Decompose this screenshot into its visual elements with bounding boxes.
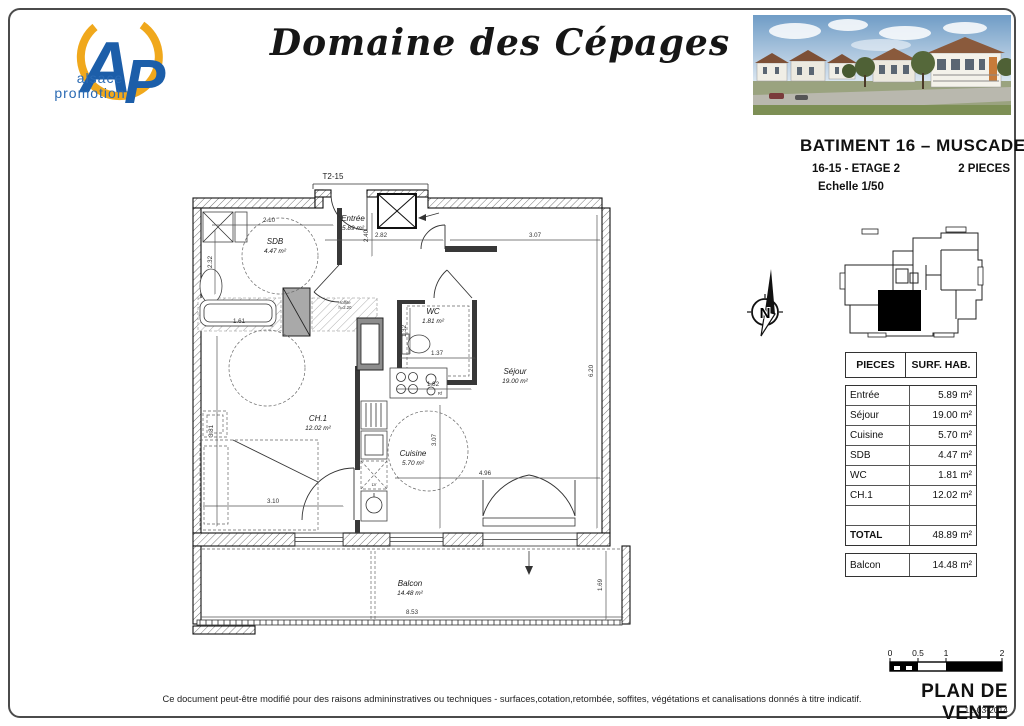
dim-entree-height: 2.40 [363,229,370,242]
room-wc-name: WC [426,307,440,316]
bedroom-furniture [200,330,318,530]
unit-type: 2 PIECES [958,163,1010,175]
room-sdb-name: SDB [267,237,284,246]
table-row-wc: WC 1.81 m² [846,466,976,486]
soffite-note-right-2: h=2.20 [339,305,353,310]
dim-ch1-height: 3.81 [208,424,215,437]
surface-table: PIECES SURF. HAB. Entrée 5.89 m² Séjour … [845,352,977,577]
scale-tick-0: 0 [888,648,893,658]
document-type-label: PLAN DE VENTE [856,681,1008,725]
alsace-promotion-logo: A P alsace promotion [38,10,190,116]
dim-sejour-top-width: 3.07 [529,232,542,239]
north-arrow: N [746,266,790,340]
building-title: BATIMENT 16 – MUSCADET [800,136,1012,156]
header-pieces: PIECES [846,353,906,377]
room-name-cell: Entrée [846,386,910,405]
project-title: Domaine des Cépages [250,22,750,64]
table-row-empty [846,506,976,526]
room-name-cell: SDB [846,446,910,465]
table-row-sdb: SDB 4.47 m² [846,446,976,466]
room-balcon-area: 14.48 m² [397,590,423,597]
dishwasher-note: LV [372,482,377,487]
document-date: 12-03-2014 [878,705,1008,715]
table-row-sejour: Séjour 19.00 m² [846,406,976,426]
logo-letter-p: P [124,48,166,116]
room-area-cell: 5.89 m² [910,386,976,405]
empty-cell [910,506,976,525]
table-row-cuisine: Cuisine 5.70 m² [846,426,976,446]
windows [295,533,577,546]
room-name-cell: Cuisine [846,426,910,445]
room-cuisine-area: 5.70 m² [402,460,425,467]
dim-sdb-width: 2.10 [263,217,276,224]
table-row-ch1: CH.1 12.02 m² [846,486,976,506]
room-cuisine-name: Cuisine [400,449,427,458]
floor-plan: soffite h=2.20 soffite h=2.20 Rf [185,168,645,640]
room-wc-area: 1.81 m² [422,318,445,325]
room-entree-name: Entrée [341,214,365,223]
key-plan [838,205,985,338]
kitchen-fixtures: Rf LV [361,368,468,521]
room-name-cell: CH.1 [846,486,910,505]
elevator-shaft [378,194,416,228]
scale-bar-notch-1 [894,666,900,670]
dimension-lines [201,213,623,619]
surface-table-body: Entrée 5.89 m² Séjour 19.00 m² Cuisine 5… [845,385,977,546]
dim-balcon-width: 8.53 [406,609,419,616]
scale-tick-1: 1 [944,648,949,658]
empty-cell [846,506,910,525]
header-surface: SURF. HAB. [906,353,976,377]
wc-fixtures [402,306,469,376]
scale-bar-right-black [946,662,1002,671]
dim-kitchen-height: 3.07 [431,433,438,446]
room-name-cell: WC [846,466,910,485]
room-area-cell: 19.00 m² [910,406,976,425]
dim-bath-width: 1.61 [233,318,246,325]
project-rendering-photo [753,15,1011,115]
room-area-cell: 14.48 m² [910,554,976,576]
dim-kitchen-width: 1.82 [427,381,440,388]
dim-entree-width: 2.82 [375,232,388,239]
logo-line2: promotion [54,85,125,101]
dimension-labels: 2.10 2.32 2.82 2.40 3.07 1.32 1.37 1.61 … [207,217,604,616]
room-sejour-area: 19.00 m² [502,378,528,385]
dim-wc-height: 1.32 [401,324,408,337]
unit-tag-label: T2-15 [323,172,344,181]
room-area-cell: 1.81 m² [910,466,976,485]
room-name-cell: Séjour [846,406,910,425]
scale-tick-05: 0.5 [912,648,924,658]
key-plan-highlighted-unit [878,290,921,331]
disclaimer-text: Ce document peut-être modifié pour des r… [162,694,862,704]
room-ch1-name: CH.1 [309,414,327,423]
dim-sdb-height: 2.32 [207,255,214,268]
table-row-balcon: Balcon 14.48 m² [846,554,976,576]
plan-de-vente-sheet: { "page": { "title": "Domaine des Cépage… [0,0,1024,726]
unit-tag: T2-15 [313,172,428,189]
photo-grass [753,105,1011,115]
room-area-cell: 5.70 m² [910,426,976,445]
scale-tick-2: 2 [1000,648,1005,658]
unit-reference: 16-15 - ETAGE 2 [812,163,900,175]
table-row-total: TOTAL 48.89 m² [846,526,976,545]
balcony-railing [197,620,622,625]
room-ch1-area: 12.02 m² [305,425,331,432]
total-label-cell: TOTAL [846,526,910,545]
scale-bar: 0 0.5 1 2 [884,648,1008,676]
surface-table-header: PIECES SURF. HAB. [845,352,977,378]
scale-bar-notch-2 [906,666,912,670]
balcony-table: Balcon 14.48 m² [845,553,977,577]
dim-ch1-width: 3.10 [267,498,280,505]
room-area-cell: 12.02 m² [910,486,976,505]
drawing-scale: Echelle 1/50 [818,181,884,193]
photo-left-houses [755,50,857,81]
room-balcon-name: Balcon [398,579,423,588]
room-entree-area: 5.89 m² [342,225,365,232]
dim-sejour-width: 4.96 [479,470,492,477]
room-name-cell: Balcon [846,554,910,576]
table-row-entree: Entrée 5.89 m² [846,386,976,406]
unit-info-row: 16-15 - ETAGE 2 2 PIECES [812,163,1010,175]
room-sejour-name: Séjour [503,367,526,376]
dim-wc-width: 1.37 [431,350,444,357]
total-area-cell: 48.89 m² [910,526,976,545]
dim-balcon-height: 1.69 [597,578,604,591]
dim-sejour-height: 6.20 [588,364,595,377]
north-label: N [760,305,771,322]
logo-line1: alsace [77,70,123,86]
room-sdb-area: 4.47 m² [264,248,287,255]
room-area-cell: 4.47 m² [910,446,976,465]
